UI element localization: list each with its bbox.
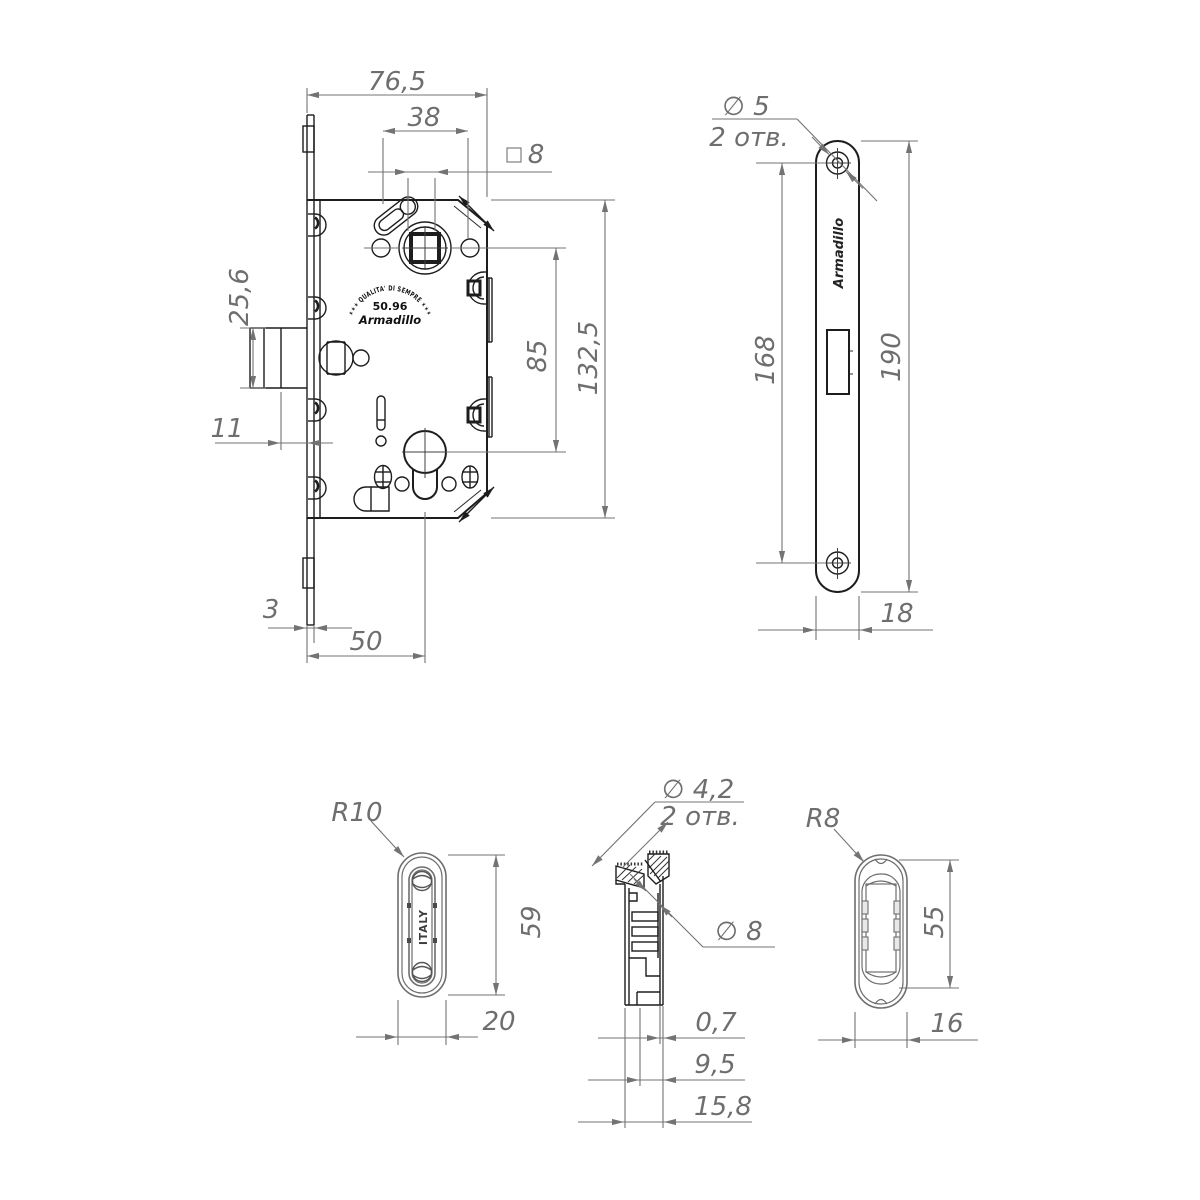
dim-body-height: 132,5 [574,321,604,395]
strike-plate-front-view: ITALY R10 59 20 [331,798,547,1045]
lock-body-view: ✶✶✶ QUALITA' DI SEMPRE ✶✶✶ 50.96 Armadil… [210,67,615,663]
logo-number: 50.96 [373,300,408,313]
callout-hole-dia-42: ∅ 4,2 [662,775,734,805]
section-callouts: ∅ 4,2 2 отв. ∅ 8 [592,775,775,947]
faceplate-strip [303,115,314,625]
dim-inner-depth: 9,5 [694,1050,735,1080]
latch-cutout [827,330,849,394]
callout-holes-count: 2 отв. [709,123,788,153]
logo-brand: Armadillo [358,313,421,327]
dim-total-width: 76,5 [368,67,426,97]
spring-pin [376,396,386,446]
strike-plate-back-view: R8 55 16 [806,804,978,1048]
dim-strike-front-width: 20 [482,1007,515,1037]
chamfer-pointer-top [459,196,494,231]
dim-latch-height: 25,6 [225,268,255,326]
euro-cylinder [375,428,479,499]
dim-centers-distance: 85 [523,339,553,372]
strike-back-dimensions: R8 55 16 [806,804,978,1048]
section-dimensions: 0,7 9,5 15,8 [578,1006,752,1128]
face-plate-brand: Armadillo [832,218,847,289]
bolt-barrel [319,341,369,375]
strike-front-dimensions: R10 59 20 [331,798,547,1045]
dim-faceplate-thickness: 3 [263,595,280,625]
callout-hole-diameter: ∅ 5 [722,92,769,122]
dim-handle-span: 38 [407,103,440,133]
drawing-canvas: ✶✶✶ QUALITA' DI SEMPRE ✶✶✶ 50.96 Armadil… [0,0,1200,1200]
left-clips [308,214,326,499]
face-plate-hole-top [824,148,851,179]
dim-plate-width: 18 [880,599,913,629]
section-profile [616,852,669,1005]
dim-strike-back-width: 16 [930,1009,963,1039]
face-plate-outline [816,141,859,592]
dim-latch-offset: 11 [210,414,243,444]
callout-holes-count-2: 2 отв. [660,802,739,832]
chamfer-pointer-bottom [459,487,494,522]
dim-strike-back-length: 55 [920,905,950,938]
dim-wall: 0,7 [695,1008,737,1038]
cross-section-view: ∅ 4,2 2 отв. ∅ 8 0,7 9,5 [578,775,775,1128]
lock-body-dimensions: 76,5 38 8 25,6 11 [210,67,615,663]
strike-back-tabs [862,901,900,950]
latch-bolt [250,328,307,388]
keeper [354,487,389,511]
right-strikes [468,272,488,431]
face-plate-view: Armadillo ∅ 5 2 отв. 168 190 18 [709,92,933,640]
dim-backset: 50 [349,627,382,657]
dim-square-hole: 8 [528,140,545,170]
country-label: ITALY [418,909,430,945]
callout-radius-r10: R10 [331,798,382,828]
face-plate-dimensions: ∅ 5 2 отв. 168 190 18 [709,92,933,640]
logo: ✶✶✶ QUALITA' DI SEMPRE ✶✶✶ 50.96 Armadil… [347,284,433,327]
callout-bore-dia-8: ∅ 8 [715,917,762,947]
face-plate-hole-bottom [824,548,851,579]
technical-drawing: ✶✶✶ QUALITA' DI SEMPRE ✶✶✶ 50.96 Armadil… [0,0,1200,1200]
dim-total-depth: 15,8 [694,1092,752,1122]
dim-plate-length: 190 [877,332,907,382]
dim-hole-centers: 168 [751,335,781,385]
dim-strike-front-length: 59 [517,905,547,938]
square-symbol [507,148,521,162]
